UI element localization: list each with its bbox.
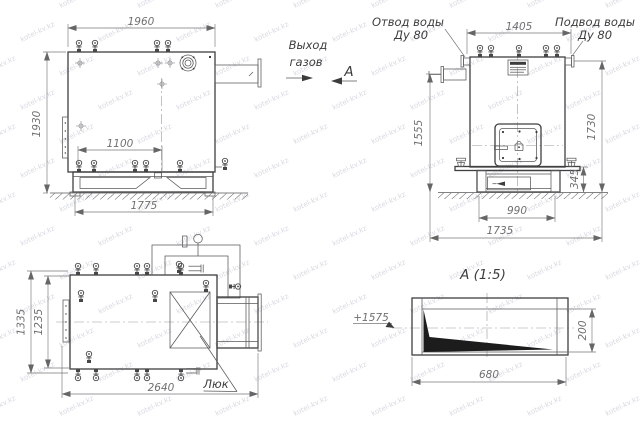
drawing-sheet: kotel-kv.kzkotel-kv.kzkotel-kv.kzkotel-k… — [0, 0, 644, 430]
dim-side-base-height: 345 — [569, 169, 581, 189]
padlock-icon — [515, 141, 523, 150]
gas-duct-front — [215, 59, 261, 87]
section-view: А (1:5) +1575 680 200 — [353, 267, 596, 386]
front-view: 1960 1930 1100 1775 — [31, 16, 261, 216]
section-marker-label: А — [343, 64, 353, 80]
deflector-wedge — [424, 310, 554, 353]
flue-box-plan — [152, 234, 240, 298]
nameplate — [508, 60, 528, 75]
gas-exit-label-2: газов — [289, 55, 322, 69]
side-pipe-stub — [429, 67, 466, 83]
water-outlet-label-1: Отвод воды — [372, 15, 444, 29]
manhole-flange — [180, 55, 196, 71]
side-bracket-plan — [63, 300, 69, 342]
hatch-label: Люк — [202, 377, 228, 391]
dim-side-height-left: 1555 — [413, 119, 425, 146]
boiler-technical-drawing: 1960 1930 1100 1775 Выход газов А — [0, 0, 644, 430]
dim-front-height: 1930 — [31, 110, 43, 137]
section-cut-marker: А — [331, 64, 357, 85]
gas-exit-annotation: Выход газов — [286, 38, 327, 81]
hatch-opening — [170, 292, 210, 348]
dim-side-base-inner: 990 — [507, 205, 527, 217]
water-inlet-nozzle — [565, 56, 574, 68]
gas-duct-plan — [217, 294, 261, 351]
dim-front-valve-spacing: 1100 — [107, 138, 134, 150]
plan-view: Люк 1335 1235 2640 — [16, 234, 269, 398]
door-handle — [495, 146, 508, 149]
side-view: Отвод воды Ду 80 Подвод воды Ду 80 1405 … — [372, 15, 635, 242]
foot-left — [457, 158, 466, 166]
dim-plan-width-inner: 1235 — [33, 308, 45, 335]
water-inlet-label-2: Ду 80 — [577, 28, 612, 42]
dim-section-length: 680 — [479, 369, 499, 381]
dim-plan-width-outer: 1335 — [16, 308, 28, 335]
water-inlet-label-1: Подвод воды — [555, 15, 635, 29]
level-mark: +1575 — [353, 312, 395, 328]
water-outlet-label-2: Ду 80 — [393, 28, 428, 42]
dim-front-width: 1960 — [128, 16, 155, 28]
dim-front-base: 1775 — [131, 200, 158, 212]
section-arrow-icon — [331, 77, 342, 84]
section-title: А (1:5) — [459, 267, 506, 283]
water-outlet-nozzle — [461, 56, 470, 68]
dim-side-top: 1405 — [506, 21, 533, 33]
dim-plan-length: 2640 — [148, 382, 175, 394]
foot-right — [567, 158, 576, 166]
gas-exit-label-1: Выход — [289, 38, 328, 52]
skid-side — [477, 171, 560, 193]
dim-section-height: 200 — [577, 320, 589, 340]
skid-front — [70, 172, 215, 196]
hatch-leader: Люк — [200, 336, 237, 392]
side-bracket — [63, 117, 69, 158]
dim-side-height-right: 1730 — [586, 113, 598, 140]
dim-side-base-overall: 1735 — [487, 225, 514, 237]
level-mark-value: +1575 — [353, 312, 389, 324]
